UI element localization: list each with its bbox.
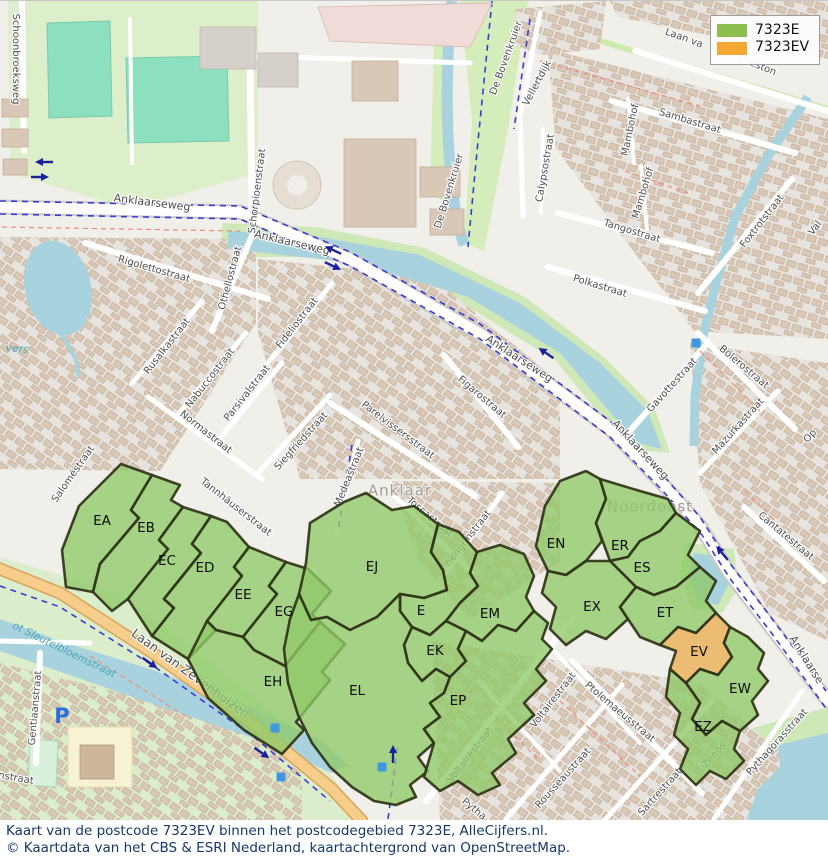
postcode-area-label-EB: EB — [137, 520, 155, 536]
postcode-area-label-EE: EE — [234, 587, 251, 603]
postcode-area-label-ET: ET — [657, 605, 675, 621]
postcode-area-label-EL: EL — [349, 683, 366, 699]
legend-label: 7323EV — [755, 40, 809, 55]
caption-line-2: © Kaartdata van het CBS & ESRI Nederland… — [6, 840, 822, 857]
poi-icon — [692, 339, 701, 348]
map-legend: 7323E 7323EV — [710, 15, 820, 65]
postcode-area-label-E: E — [417, 603, 426, 619]
postcode-area-label-ER: ER — [611, 538, 629, 554]
legend-item-7323E: 7323E — [717, 23, 813, 38]
postcode-area-label-ES: ES — [633, 560, 650, 576]
postcode-area-label-EA: EA — [93, 513, 112, 529]
water-label: vers — [5, 342, 29, 356]
postcode-area-label-EK: EK — [426, 643, 445, 659]
postcode-map-page: SchoonbroekswegAnklaarsewegAnklaarsewegS… — [0, 0, 828, 861]
postcode-area-label-EV: EV — [690, 644, 709, 660]
caption-line-1: Kaart van de postcode 7323EV binnen het … — [6, 823, 822, 840]
poi-icon — [378, 763, 387, 772]
legend-item-7323EV: 7323EV — [717, 40, 813, 55]
parking-icon: P — [54, 704, 69, 728]
postcode-area-label-ED: ED — [196, 560, 215, 576]
legend-swatch-orange-icon — [717, 42, 747, 55]
street-label: Schoonbroeksweg — [10, 14, 21, 105]
postcode-area-label-EH: EH — [264, 674, 283, 690]
postcode-area-label-EC: EC — [158, 553, 176, 569]
map-captions: Kaart van de postcode 7323EV binnen het … — [0, 820, 828, 861]
poi-icon — [277, 773, 286, 782]
postcode-area-label-EW: EW — [729, 681, 751, 697]
legend-label: 7323E — [755, 23, 799, 38]
postcode-area-label-EG: EG — [275, 604, 294, 620]
map-canvas[interactable]: SchoonbroekswegAnklaarsewegAnklaarsewegS… — [0, 0, 828, 820]
postcode-area-label-EP: EP — [450, 693, 467, 709]
postcode-area-label-EZ: EZ — [694, 719, 712, 735]
legend-swatch-green-icon — [717, 24, 747, 37]
postcode-area-label-EM: EM — [480, 606, 500, 622]
place-label: Anklaar — [368, 482, 432, 500]
postcode-area-label-EN: EN — [547, 536, 566, 552]
map-svg[interactable]: SchoonbroekswegAnklaarsewegAnklaarsewegS… — [0, 1, 828, 821]
poi-icon — [271, 724, 280, 733]
postcode-area-label-EX: EX — [583, 599, 601, 615]
postcode-area-label-EJ: EJ — [366, 559, 379, 575]
